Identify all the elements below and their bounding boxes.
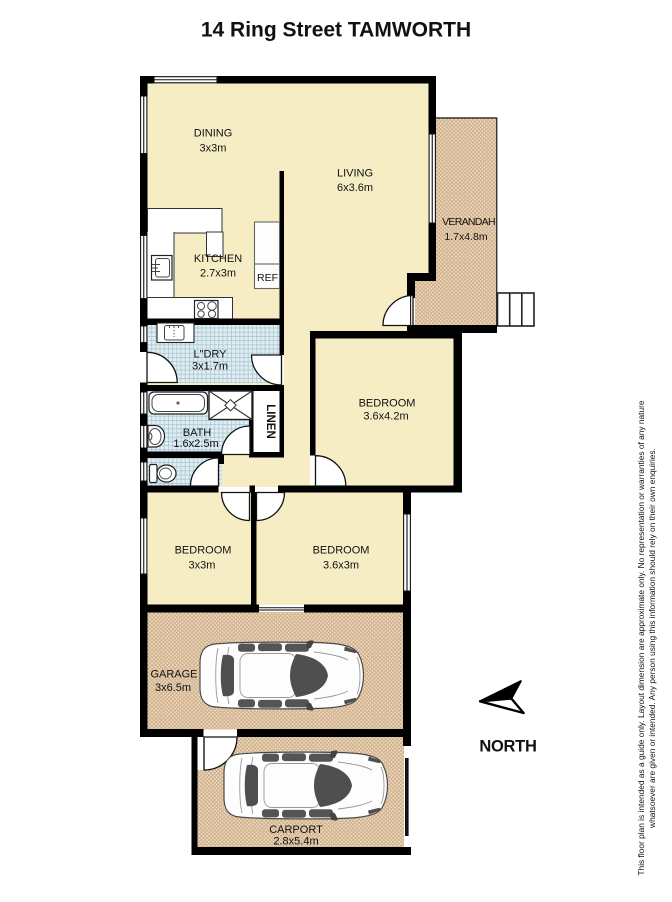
svg-text:LIVING: LIVING [337, 168, 373, 180]
svg-text:3x1.7m: 3x1.7m [192, 361, 228, 373]
svg-text:3.6x4.2m: 3.6x4.2m [363, 411, 408, 423]
svg-text:CARPORT: CARPORT [269, 824, 323, 836]
svg-text:whatsoever are given or intend: whatsoever are given or intended. Any pe… [647, 448, 657, 829]
svg-text:14 Ring Street TAMWORTH: 14 Ring Street TAMWORTH [201, 19, 471, 42]
svg-text:1.7x4.8m: 1.7x4.8m [444, 231, 487, 243]
svg-text:VERANDAH: VERANDAH [442, 216, 495, 228]
svg-text:3x3m: 3x3m [189, 560, 216, 572]
svg-text:This floor plan is intended as: This floor plan is intended as a guide o… [636, 400, 646, 875]
svg-text:REF: REF [257, 272, 278, 284]
svg-text:DINING: DINING [194, 128, 233, 140]
svg-text:LINEN: LINEN [264, 404, 276, 439]
svg-text:3.6x3m: 3.6x3m [323, 560, 359, 572]
svg-text:BEDROOM: BEDROOM [359, 398, 416, 410]
svg-text:BEDROOM: BEDROOM [175, 545, 232, 557]
svg-text:1.6x2.5m: 1.6x2.5m [173, 438, 218, 450]
svg-text:2.7x3m: 2.7x3m [200, 268, 236, 280]
svg-text:3x3m: 3x3m [200, 143, 227, 155]
svg-text:L"DRY: L"DRY [193, 349, 227, 361]
svg-text:3x6.5m: 3x6.5m [155, 682, 191, 694]
svg-text:NORTH: NORTH [479, 738, 536, 756]
svg-text:BEDROOM: BEDROOM [313, 545, 370, 557]
svg-text:2.8x5.4m: 2.8x5.4m [273, 836, 318, 848]
svg-text:GARAGE: GARAGE [150, 669, 197, 681]
svg-text:6x3.6m: 6x3.6m [337, 182, 373, 194]
svg-text:KITCHEN: KITCHEN [194, 253, 242, 265]
